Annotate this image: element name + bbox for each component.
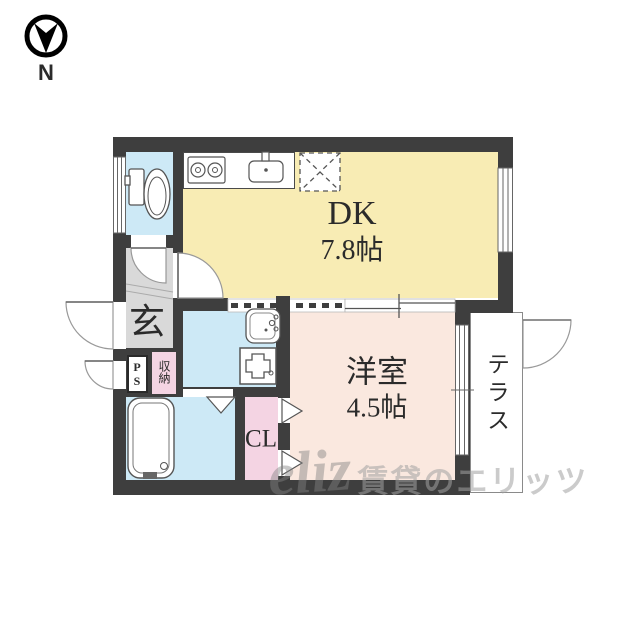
room-washroom-floor: [180, 307, 278, 387]
western-room-label: 洋室: [346, 357, 408, 388]
dk-room-size: 7.8帖: [320, 237, 383, 265]
north-compass-icon: [18, 8, 78, 68]
closet-door-opening-1: [278, 398, 290, 423]
storage-label: 収納: [158, 360, 170, 384]
dk-door-opening: [173, 253, 183, 298]
terrace-label: テラス: [485, 352, 508, 436]
terrace-door-arc: [523, 320, 571, 368]
toilet-door-opening: [131, 235, 166, 248]
entrance-label: 玄: [129, 304, 165, 340]
closet-label: CL: [245, 427, 277, 452]
ps-door-arc: [85, 361, 113, 389]
compass-north-label: N: [38, 62, 54, 84]
closet-door-opening-2: [278, 450, 290, 476]
entrance-door-arc: [66, 302, 113, 349]
kitchen-counter: [183, 152, 295, 189]
wall-dk-washroom: [173, 298, 228, 311]
ps-door-opening: [113, 361, 126, 389]
entrance-door-opening: [113, 302, 126, 349]
floorplan-page: { "compass": { "label": "N" }, "rooms": …: [0, 0, 640, 640]
wall-right-upper: [498, 137, 513, 313]
wall-bath-closet: [235, 387, 245, 480]
dk-room-label: DK: [327, 197, 376, 231]
wall-right-lower: [455, 300, 470, 480]
bathroom-door-opening: [183, 389, 233, 397]
room-toilet-floor: [126, 150, 173, 235]
wall-washroom-western: [276, 296, 290, 395]
western-room-size: 4.5帖: [347, 395, 408, 422]
wall-bottom: [113, 480, 470, 495]
room-bathroom-floor: [126, 397, 235, 480]
pipe-space-label: PS: [131, 360, 143, 388]
